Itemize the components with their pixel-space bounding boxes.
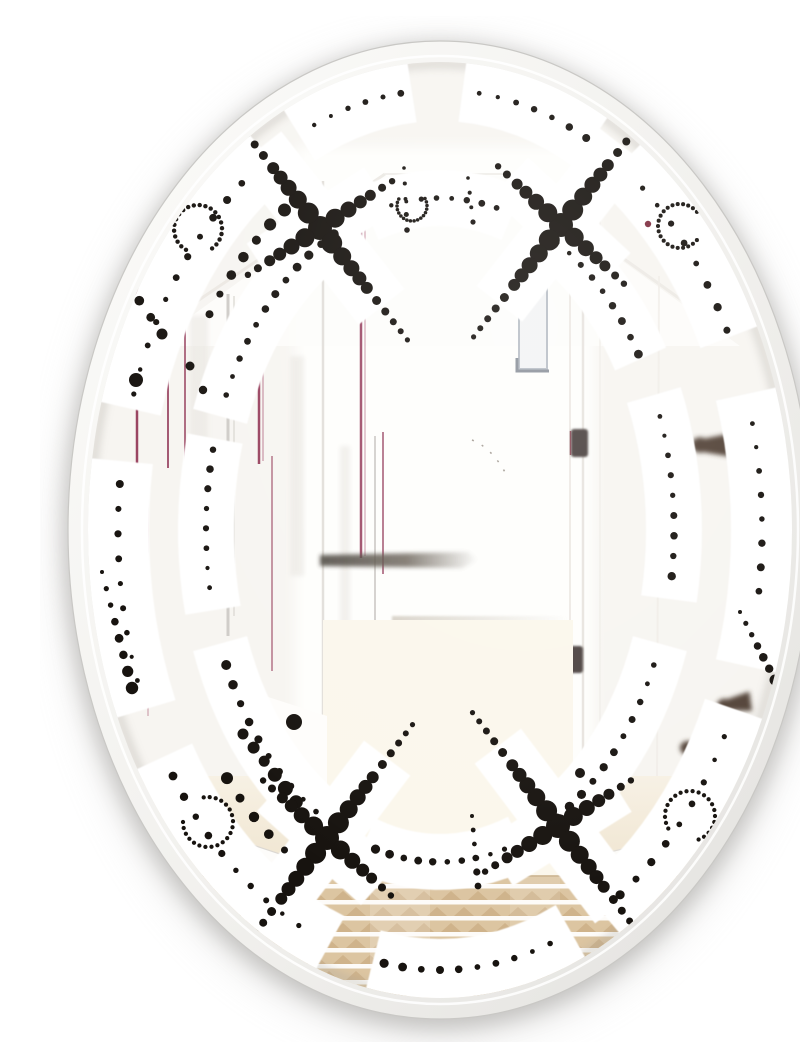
mirror-product-photo xyxy=(40,16,800,1042)
glass-sheen xyxy=(88,62,792,998)
